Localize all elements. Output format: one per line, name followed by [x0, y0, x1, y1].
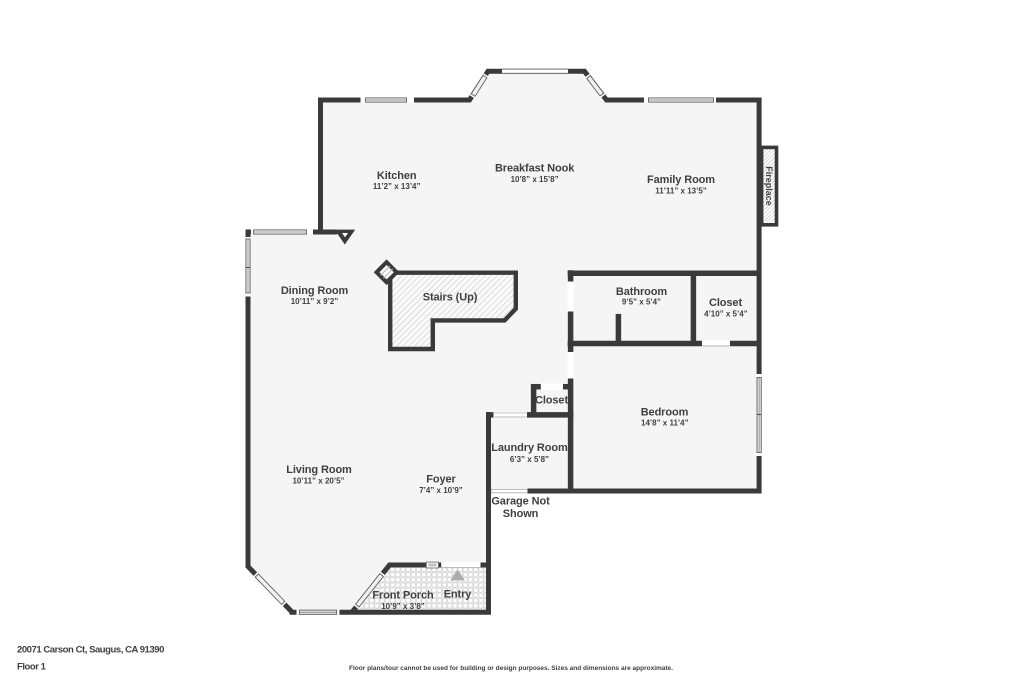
svg-text:Entry: Entry [444, 589, 473, 601]
svg-text:7’4” x 10’9”: 7’4” x 10’9” [419, 486, 463, 495]
svg-text:Breakfast Nook: Breakfast Nook [495, 162, 575, 174]
svg-text:11’11” x 13’5”: 11’11” x 13’5” [655, 187, 707, 196]
svg-text:9’5” x 5’4”: 9’5” x 5’4” [622, 298, 661, 307]
svg-text:Garage Not: Garage Not [491, 496, 550, 508]
svg-text:Fireplace: Fireplace [764, 166, 774, 206]
svg-text:Bedroom: Bedroom [641, 407, 689, 419]
svg-text:Dining Room: Dining Room [281, 285, 349, 297]
svg-text:10’9” x 3’8”: 10’9” x 3’8” [381, 602, 425, 611]
svg-text:Closet: Closet [535, 395, 568, 407]
svg-text:11’2” x 13’4”: 11’2” x 13’4” [373, 182, 421, 191]
svg-text:Family Room: Family Room [647, 174, 715, 186]
svg-text:Living Room: Living Room [286, 464, 352, 476]
svg-text:Laundry Room: Laundry Room [491, 442, 568, 454]
svg-text:Floor plans/tour cannot be use: Floor plans/tour cannot be used for buil… [349, 665, 673, 672]
svg-text:20071 Carson Ct, Saugus, CA 91: 20071 Carson Ct, Saugus, CA 91390 [17, 645, 164, 656]
svg-text:Floor 1: Floor 1 [17, 661, 47, 672]
svg-text:10’11” x 9’2”: 10’11” x 9’2” [291, 297, 339, 306]
svg-text:6’3” x 5’8”: 6’3” x 5’8” [510, 455, 549, 464]
svg-text:Shown: Shown [503, 508, 539, 520]
svg-text:Bathroom: Bathroom [616, 286, 667, 298]
svg-text:Stairs (Up): Stairs (Up) [423, 292, 478, 304]
svg-text:Kitchen: Kitchen [377, 170, 417, 182]
svg-text:14’8” x 11’4”: 14’8” x 11’4” [641, 419, 689, 428]
svg-text:Front Porch: Front Porch [372, 590, 434, 602]
svg-text:Foyer: Foyer [426, 474, 456, 486]
svg-text:10’8” x 15’8”: 10’8” x 15’8” [511, 175, 559, 184]
svg-text:4’10” x 5’4”: 4’10” x 5’4” [704, 309, 748, 318]
svg-text:Closet: Closet [709, 297, 742, 309]
svg-text:10’11” x 20’5”: 10’11” x 20’5” [292, 476, 344, 485]
